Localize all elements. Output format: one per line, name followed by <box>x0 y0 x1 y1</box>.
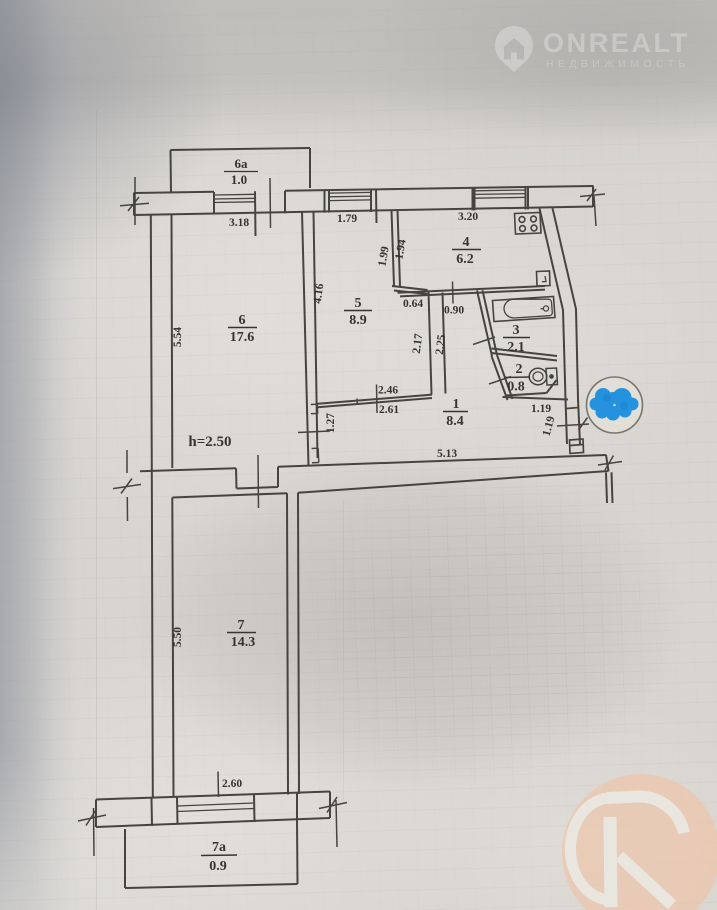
svg-text:7а: 7а <box>212 840 226 855</box>
svg-text:8.9: 8.9 <box>349 313 367 328</box>
svg-text:5.13: 5.13 <box>437 448 457 460</box>
svg-text:2.61: 2.61 <box>379 404 399 416</box>
svg-text:3: 3 <box>513 323 520 338</box>
svg-text:8.4: 8.4 <box>446 414 464 429</box>
svg-text:17.6: 17.6 <box>230 330 255 345</box>
svg-text:3.20: 3.20 <box>458 211 478 223</box>
svg-text:2.1: 2.1 <box>507 340 525 355</box>
svg-text:1.94: 1.94 <box>393 238 408 260</box>
svg-text:2.60: 2.60 <box>222 778 242 790</box>
svg-text:0.90: 0.90 <box>444 305 464 317</box>
svg-text:h=2.50: h=2.50 <box>188 434 231 450</box>
svg-text:3.18: 3.18 <box>229 217 249 229</box>
svg-text:1: 1 <box>453 397 460 412</box>
svg-text:1.0: 1.0 <box>231 172 247 187</box>
svg-text:2: 2 <box>516 362 523 377</box>
svg-text:1.79: 1.79 <box>337 213 357 225</box>
svg-text:2.17: 2.17 <box>411 333 425 355</box>
svg-text:ONREALT: ONREALT <box>543 28 690 58</box>
svg-text:2.46: 2.46 <box>378 385 398 397</box>
svg-text:1.19: 1.19 <box>541 415 558 438</box>
svg-text:7: 7 <box>238 618 245 633</box>
svg-text:6.2: 6.2 <box>456 252 474 267</box>
svg-text:0.9: 0.9 <box>209 859 227 874</box>
svg-text:5.50: 5.50 <box>172 627 184 647</box>
svg-text:НЕДВИЖИМОСТЬ: НЕДВИЖИМОСТЬ <box>546 58 690 70</box>
svg-text:5: 5 <box>355 296 362 311</box>
svg-text:0.8: 0.8 <box>507 380 525 395</box>
svg-text:14.3: 14.3 <box>231 635 256 650</box>
svg-text:6: 6 <box>239 313 246 328</box>
svg-text:1.19: 1.19 <box>531 403 551 415</box>
svg-text:1.27: 1.27 <box>325 413 337 433</box>
svg-text:5.54: 5.54 <box>172 327 184 347</box>
svg-text:2.25: 2.25 <box>434 334 448 356</box>
svg-text:6а: 6а <box>235 156 249 171</box>
svg-text:1.99: 1.99 <box>376 245 391 267</box>
svg-text:4.16: 4.16 <box>312 283 327 305</box>
svg-text:0.64: 0.64 <box>403 298 423 310</box>
svg-text:4: 4 <box>463 235 470 250</box>
